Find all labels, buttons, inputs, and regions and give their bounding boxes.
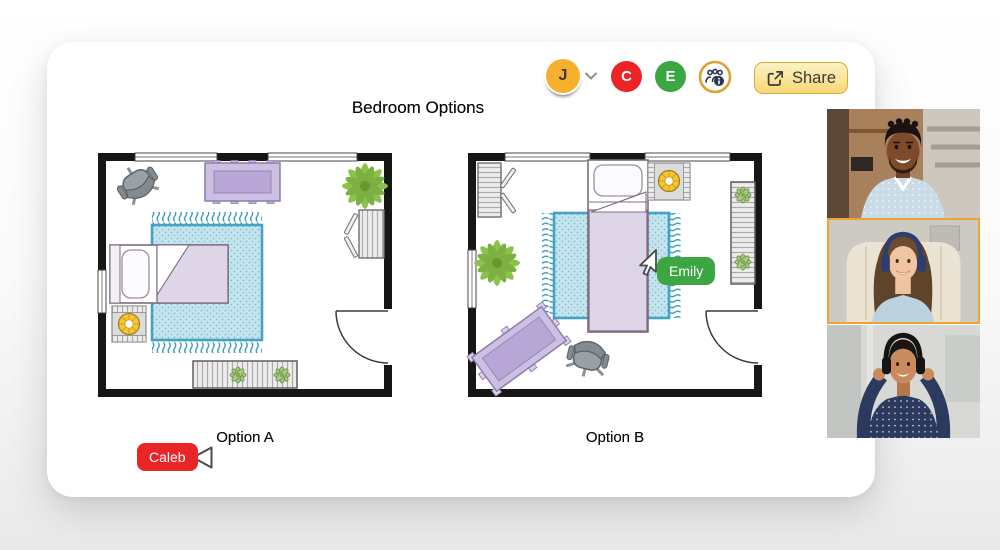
office-chair[interactable]: [563, 337, 611, 381]
plant[interactable]: [474, 240, 520, 286]
participant-3-video: [827, 325, 980, 438]
option-b-label[interactable]: Option B: [550, 429, 680, 446]
collaborator-avatar-c[interactable]: C: [611, 61, 642, 92]
magazine-rack[interactable]: [344, 210, 384, 258]
cursor-name: Emily: [669, 263, 703, 279]
slatted-bench[interactable]: [731, 182, 755, 284]
share-button-label: Share: [792, 69, 836, 88]
page-background: Bedroom Options Option A Option B: [0, 0, 1000, 550]
shelf-rack[interactable]: [478, 163, 516, 217]
cursor-label-emily: Emily: [657, 257, 715, 285]
floorplan-option-a[interactable]: [95, 150, 395, 400]
user-avatar[interactable]: J: [546, 59, 580, 93]
door[interactable]: [336, 309, 393, 365]
board-title[interactable]: Bedroom Options: [318, 98, 518, 118]
collaborator-avatar-initial: C: [621, 68, 632, 85]
flower-side-table[interactable]: [648, 163, 690, 200]
bed[interactable]: [588, 160, 648, 332]
door[interactable]: [706, 309, 763, 365]
cursor-name: Caleb: [149, 449, 186, 465]
collaborator-avatar-initial: E: [665, 68, 675, 85]
chevron-down-icon[interactable]: [584, 71, 598, 81]
slatted-bench[interactable]: [193, 361, 297, 388]
flower-side-table[interactable]: [112, 306, 146, 342]
video-tile-participant-1[interactable]: [827, 109, 980, 219]
plant[interactable]: [342, 163, 388, 209]
share-button[interactable]: Share: [754, 62, 848, 94]
cursor-label-caleb: Caleb: [137, 443, 198, 471]
bed[interactable]: [110, 245, 228, 303]
collaborator-avatar-e[interactable]: E: [655, 61, 686, 92]
people-info-icon: [698, 60, 732, 94]
cursor-arrow-icon: [632, 248, 660, 276]
user-avatar-initial: J: [559, 67, 568, 85]
video-tile-participant-3[interactable]: [827, 324, 980, 438]
option-a-label[interactable]: Option A: [180, 429, 310, 446]
participant-1-video: [827, 109, 980, 218]
video-tile-participant-2[interactable]: [827, 218, 980, 324]
participant-2-video: [829, 220, 978, 322]
floorplan-option-b[interactable]: [465, 150, 765, 400]
office-chair[interactable]: [111, 157, 164, 208]
collaborators-button[interactable]: [698, 60, 732, 94]
daybed-bench[interactable]: [205, 161, 280, 204]
share-icon: [766, 69, 785, 88]
